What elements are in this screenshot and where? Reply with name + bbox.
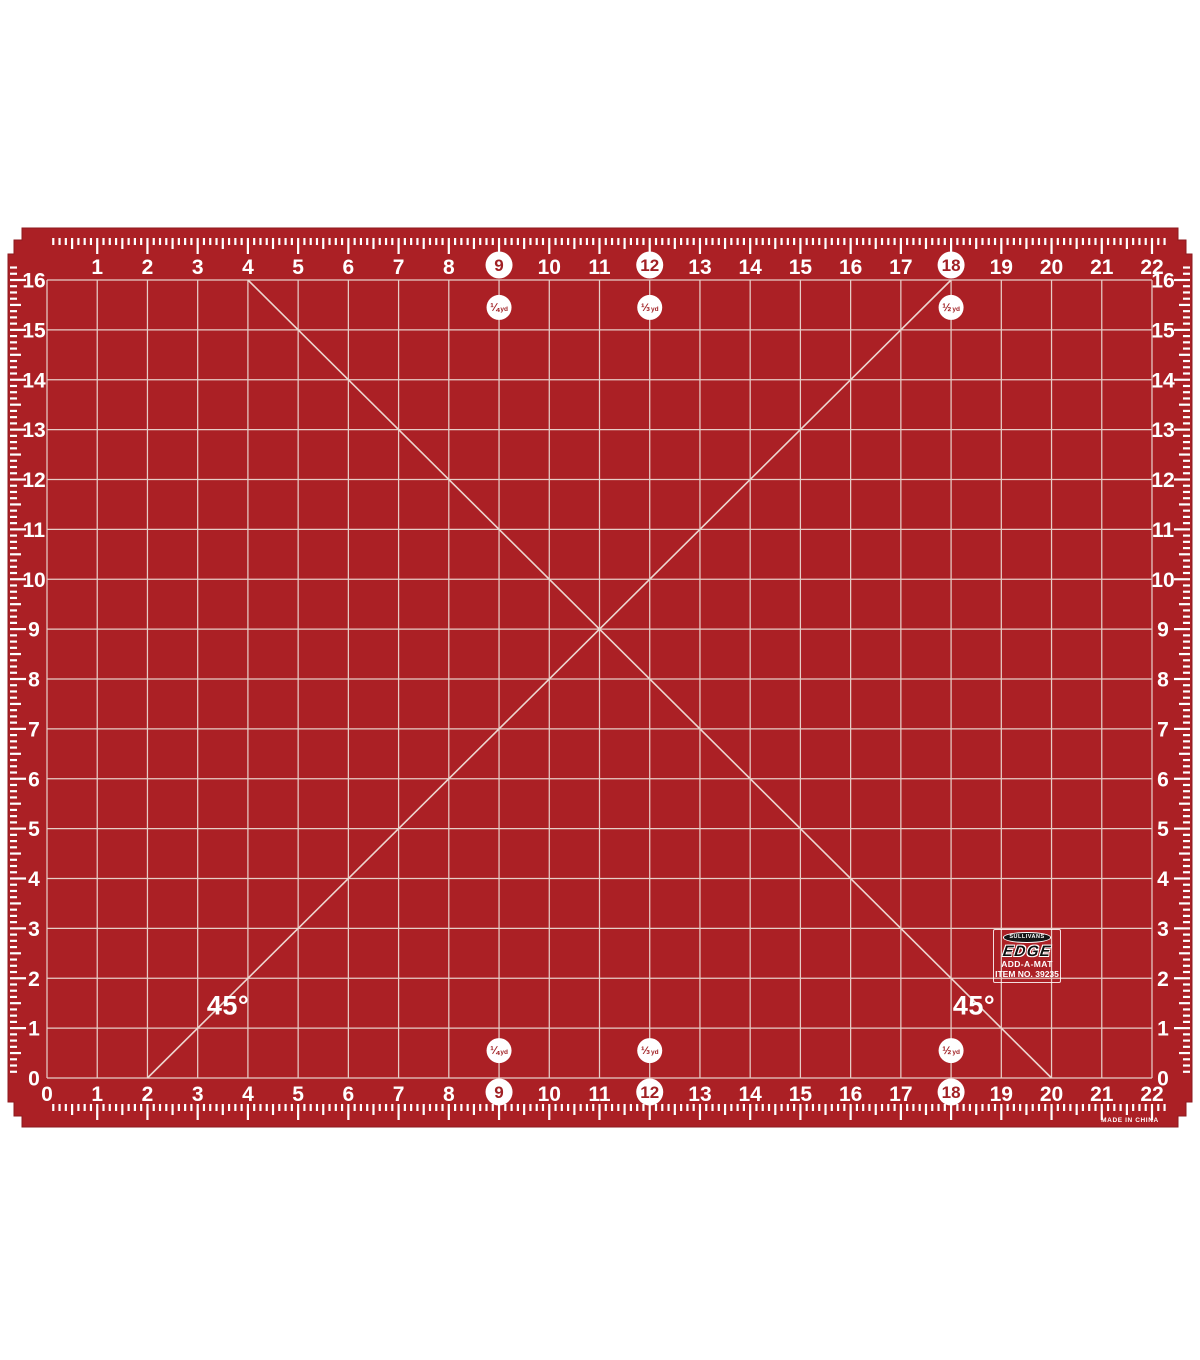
svg-text:15: 15: [1151, 319, 1175, 342]
svg-text:7: 7: [393, 256, 405, 279]
svg-text:16: 16: [839, 256, 862, 279]
svg-text:1: 1: [91, 1083, 103, 1106]
svg-text:5: 5: [292, 1083, 304, 1106]
svg-text:2: 2: [142, 1083, 154, 1106]
svg-text:7: 7: [28, 718, 40, 741]
svg-text:6: 6: [343, 256, 355, 279]
svg-text:14: 14: [738, 1083, 762, 1106]
svg-text:19: 19: [990, 256, 1013, 279]
svg-text:10: 10: [1151, 569, 1174, 592]
svg-text:0: 0: [1157, 1068, 1169, 1091]
svg-text:21: 21: [1090, 256, 1114, 279]
svg-text:8: 8: [1157, 669, 1169, 692]
angle-label-right: 45°: [953, 991, 995, 1022]
svg-text:6: 6: [28, 768, 40, 791]
svg-text:13: 13: [688, 256, 711, 279]
svg-text:8: 8: [28, 669, 40, 692]
svg-text:13: 13: [22, 419, 45, 442]
svg-text:9: 9: [494, 1083, 503, 1102]
cutting-mat: 1234567891011121314151617181920212201234…: [0, 0, 1200, 1360]
svg-text:3: 3: [1157, 918, 1169, 941]
svg-text:5: 5: [1157, 818, 1169, 841]
svg-text:7: 7: [1157, 718, 1169, 741]
svg-text:3: 3: [192, 256, 204, 279]
svg-text:15: 15: [22, 319, 46, 342]
svg-text:6: 6: [343, 1083, 355, 1106]
svg-text:14: 14: [738, 256, 762, 279]
svg-text:13: 13: [1151, 419, 1174, 442]
svg-text:11: 11: [1152, 519, 1175, 542]
svg-text:11: 11: [23, 519, 46, 542]
svg-text:5: 5: [292, 256, 304, 279]
svg-text:9: 9: [1157, 619, 1169, 642]
svg-text:1: 1: [91, 256, 103, 279]
svg-text:12: 12: [1151, 469, 1174, 492]
svg-text:16: 16: [22, 270, 45, 293]
svg-text:14: 14: [22, 369, 46, 392]
svg-text:9: 9: [28, 619, 40, 642]
svg-text:3: 3: [28, 918, 40, 941]
svg-text:17: 17: [889, 256, 912, 279]
svg-text:15: 15: [789, 1083, 813, 1106]
item-number: ITEM NO. 39235: [995, 970, 1059, 979]
svg-text:11: 11: [588, 256, 611, 279]
product-name: ADD-A-MAT: [1001, 960, 1053, 969]
svg-text:11: 11: [588, 1083, 611, 1106]
svg-text:10: 10: [538, 1083, 561, 1106]
svg-text:15: 15: [789, 256, 813, 279]
svg-text:4: 4: [1157, 868, 1169, 891]
product-photo: 1234567891011121314151617181920212201234…: [0, 0, 1200, 1360]
angle-label-left: 45°: [207, 991, 249, 1022]
svg-text:12: 12: [22, 469, 45, 492]
svg-text:13: 13: [688, 1083, 711, 1106]
svg-text:2: 2: [142, 256, 154, 279]
svg-text:0: 0: [41, 1083, 53, 1106]
svg-text:21: 21: [1090, 1083, 1114, 1106]
svg-text:9: 9: [494, 256, 503, 275]
svg-text:4: 4: [242, 256, 254, 279]
svg-text:10: 10: [22, 569, 45, 592]
brand-logo: SULLIVANS EDGE ADD-A-MAT ITEM NO. 39235: [993, 929, 1061, 983]
svg-text:19: 19: [990, 1083, 1013, 1106]
svg-text:12: 12: [640, 1083, 659, 1102]
brand-oval: SULLIVANS: [1003, 932, 1050, 943]
edge-wordmark: EDGE: [1002, 944, 1053, 959]
svg-text:16: 16: [1151, 270, 1174, 293]
svg-text:8: 8: [443, 1083, 455, 1106]
svg-text:12: 12: [640, 256, 659, 275]
svg-text:3: 3: [192, 1083, 204, 1106]
svg-text:4: 4: [242, 1083, 254, 1106]
svg-text:5: 5: [28, 818, 40, 841]
svg-text:4: 4: [28, 868, 40, 891]
svg-text:17: 17: [889, 1083, 912, 1106]
svg-text:0: 0: [28, 1068, 40, 1091]
svg-text:2: 2: [28, 968, 40, 991]
svg-text:10: 10: [538, 256, 561, 279]
svg-text:1: 1: [28, 1018, 40, 1041]
svg-text:1: 1: [1157, 1018, 1169, 1041]
svg-text:8: 8: [443, 256, 455, 279]
svg-text:18: 18: [942, 256, 961, 275]
origin-label: MADE IN CHINA: [1098, 1117, 1162, 1124]
svg-text:14: 14: [1151, 369, 1175, 392]
svg-text:20: 20: [1040, 256, 1063, 279]
svg-text:6: 6: [1157, 768, 1169, 791]
svg-text:7: 7: [393, 1083, 405, 1106]
svg-text:16: 16: [839, 1083, 862, 1106]
svg-text:20: 20: [1040, 1083, 1063, 1106]
svg-text:2: 2: [1157, 968, 1169, 991]
svg-text:18: 18: [942, 1083, 961, 1102]
